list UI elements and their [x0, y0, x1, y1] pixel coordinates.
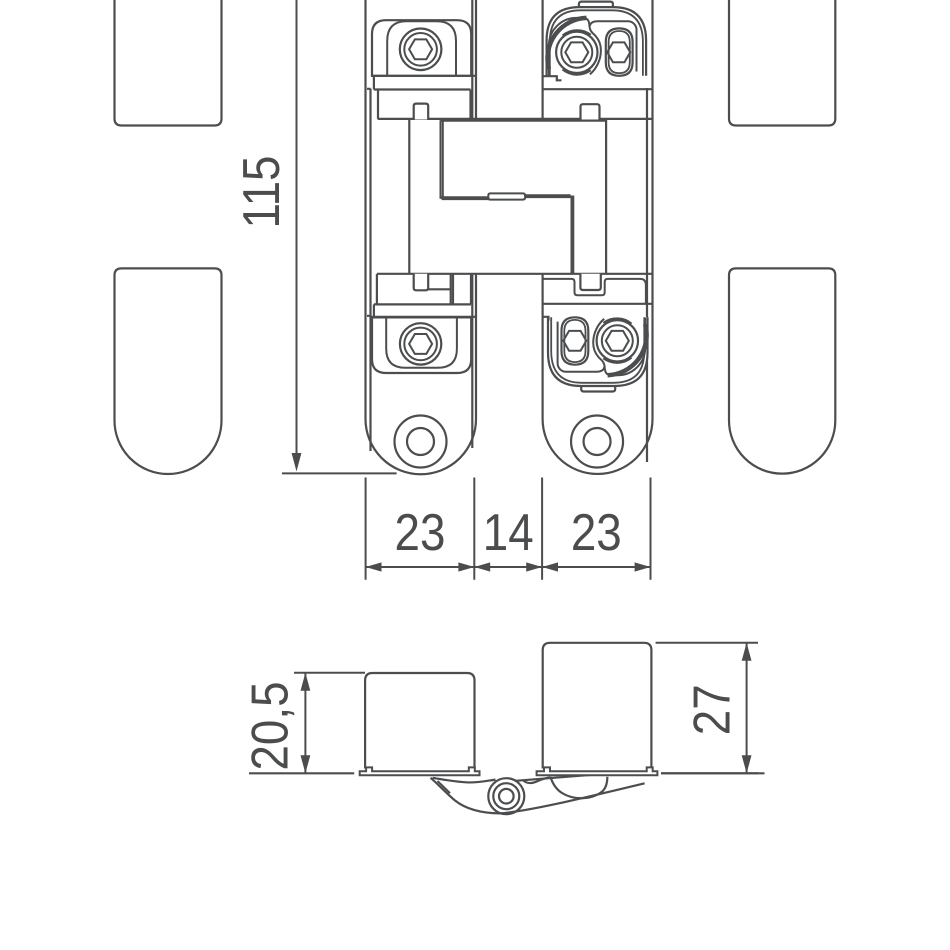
svg-text:14: 14	[483, 504, 534, 561]
svg-text:23: 23	[395, 504, 446, 561]
svg-text:27: 27	[684, 684, 741, 735]
svg-text:115: 115	[233, 156, 290, 229]
svg-text:23: 23	[571, 504, 622, 561]
svg-text:20,5: 20,5	[242, 681, 299, 770]
